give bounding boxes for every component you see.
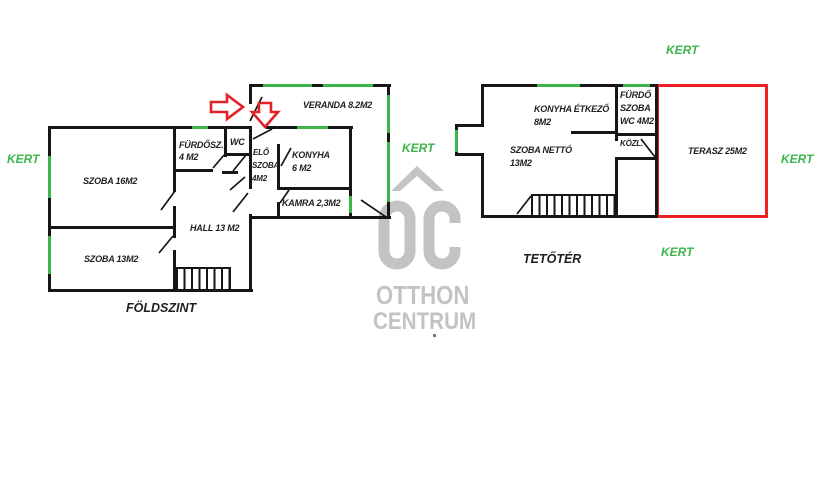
- room-label-furdo-line3: WC 4M2: [620, 116, 654, 126]
- floor-plan-image: OTTHON CENTRUM: [0, 0, 839, 500]
- room-label-furdo-line2: SZOBA: [620, 103, 651, 113]
- room-label-veranda: VERANDA 8.2M2: [303, 100, 372, 110]
- room-label-konyha-etkezo-line1: KONYHA ÉTKEZŐ: [534, 104, 609, 114]
- room-label-szoba-netto-line2: 13M2: [510, 158, 532, 168]
- room-label-furdosz-line1: FÜRDŐSZ.: [179, 140, 223, 150]
- garden-label-left: KERT: [7, 152, 39, 166]
- plan-overlay: [0, 0, 839, 500]
- room-label-eloszoba-line2: SZOBA: [252, 161, 279, 170]
- room-label-konyha-etkezo-line2: 8M2: [534, 117, 551, 127]
- room-label-hall: HALL 13 M2: [190, 223, 239, 233]
- entrance-arrow-down-icon: [252, 103, 278, 127]
- room-label-szoba-netto-line1: SZOBA NETTÓ: [510, 145, 572, 155]
- room-label-szoba13: SZOBA 13M2: [84, 254, 138, 264]
- room-label-eloszoba-line3: 4M2: [252, 174, 267, 183]
- room-label-wc: WC: [230, 137, 245, 147]
- entrance-arrow-right-icon: [211, 95, 243, 119]
- room-label-furdosz-line2: 4 M2: [179, 152, 198, 162]
- room-label-konyha-line2: 6 M2: [292, 163, 311, 173]
- garden-label-bottom: KERT: [661, 245, 693, 259]
- room-label-eloszoba-line1: ELŐ: [253, 148, 269, 157]
- floor-title-attic: TETŐTÉR: [523, 252, 581, 266]
- garden-label-middle: KERT: [402, 141, 434, 155]
- room-label-kamra: KAMRA 2,3M2: [282, 198, 340, 208]
- room-label-furdo-line1: FÜRDŐ: [620, 90, 651, 100]
- room-label-terasz: TERASZ 25M2: [688, 146, 747, 156]
- room-label-szoba16: SZOBA 16M2: [83, 176, 137, 186]
- room-label-kozl: KÖZL.: [620, 139, 643, 148]
- garden-label-right: KERT: [781, 152, 813, 166]
- floor-title-ground: FÖLDSZINT: [126, 301, 196, 315]
- garden-label-top: KERT: [666, 43, 698, 57]
- room-label-konyha-line1: KONYHA: [292, 150, 330, 160]
